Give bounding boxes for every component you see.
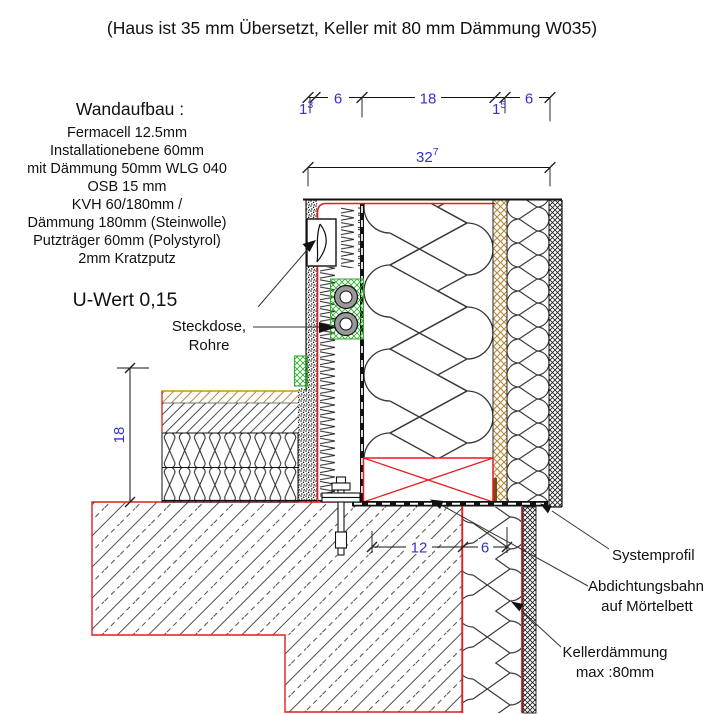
wall-spec-layer: Dämmung 180mm (Steinwolle)	[27, 215, 226, 231]
technical-drawing-canvas: (Haus ist 35 mm Übersetzt, Keller mit 80…	[0, 0, 706, 714]
dim-osb: 15	[492, 99, 506, 118]
wall-spec-uvalue: U-Wert 0,15	[73, 289, 178, 311]
putztraeger-layer	[507, 200, 549, 502]
dim-keller-wall: 12	[411, 540, 428, 557]
wall-spec-layer: Putzträger 60mm (Polystyrol)	[33, 233, 221, 249]
pipe-inner	[340, 318, 352, 330]
wall-spec-layer: OSB 15 mm	[88, 179, 167, 195]
floor-edge-strip	[298, 388, 306, 502]
osb-panel-layer	[493, 200, 507, 502]
dim-putz: 6	[525, 91, 533, 108]
basement-insulation	[463, 507, 537, 713]
installation-insulation	[341, 207, 360, 268]
sealing-membrane-strip	[523, 507, 536, 713]
floor-height-dimension: 18	[111, 363, 149, 507]
wall-spec-layer: Fermacell 12.5mm	[67, 125, 187, 141]
wall-section	[295, 200, 563, 556]
sealing-strip-green	[295, 356, 308, 386]
dim-fermacell: 13	[299, 99, 313, 118]
dim-installation: 6	[334, 91, 342, 108]
kvh-steinwolle-layer	[364, 203, 493, 502]
mortar-bed-bar	[352, 501, 548, 507]
top-dimensions: 6 18 6 13 15 327	[299, 90, 555, 186]
label-steckdose-line1: Steckdose,	[172, 318, 246, 335]
page-title: (Haus ist 35 mm Übersetzt, Keller mit 80…	[107, 18, 597, 38]
wall-spec-heading: Wandaufbau :	[76, 99, 184, 119]
floor-screed-top-layer	[162, 391, 298, 403]
label-steckdose-line2: Rohre	[189, 337, 230, 354]
label-keller-line1: Kellerdämmung	[562, 644, 667, 661]
label-systemprofil: Systemprofil	[612, 547, 695, 564]
kratzputz-layer	[549, 200, 562, 507]
dim-keller-insulation: 6	[481, 540, 489, 557]
base-rail-profile	[494, 478, 498, 502]
wall-spec-layer: mit Dämmung 50mm WLG 040	[27, 161, 227, 177]
wall-spec-layer: 2mm Kratzputz	[78, 251, 176, 267]
drawing-page: (Haus ist 35 mm Übersetzt, Keller mit 80…	[0, 0, 706, 714]
wall-spec-layer: Installationebene 60mm	[50, 143, 204, 159]
dim-total: 327	[416, 146, 439, 166]
dim-kvh: 18	[420, 91, 437, 108]
label-abdichtung-line1: Abdichtungsbahn	[588, 578, 704, 595]
pipe-inner	[340, 291, 352, 303]
basement-concrete	[92, 502, 462, 712]
sill-plate-marked	[364, 458, 494, 502]
label-keller-line2: max :80mm	[576, 664, 654, 681]
label-abdichtung-line2: auf Mörtelbett	[601, 598, 694, 615]
pipes-socket-zone	[331, 279, 364, 339]
dim-floor-height: 18	[111, 427, 128, 444]
wall-spec-layer: KVH 60/180mm /	[72, 197, 183, 213]
wall-spec-block: Wandaufbau : Fermacell 12.5mm Installati…	[27, 99, 227, 311]
floor-screed-layer	[162, 403, 298, 433]
